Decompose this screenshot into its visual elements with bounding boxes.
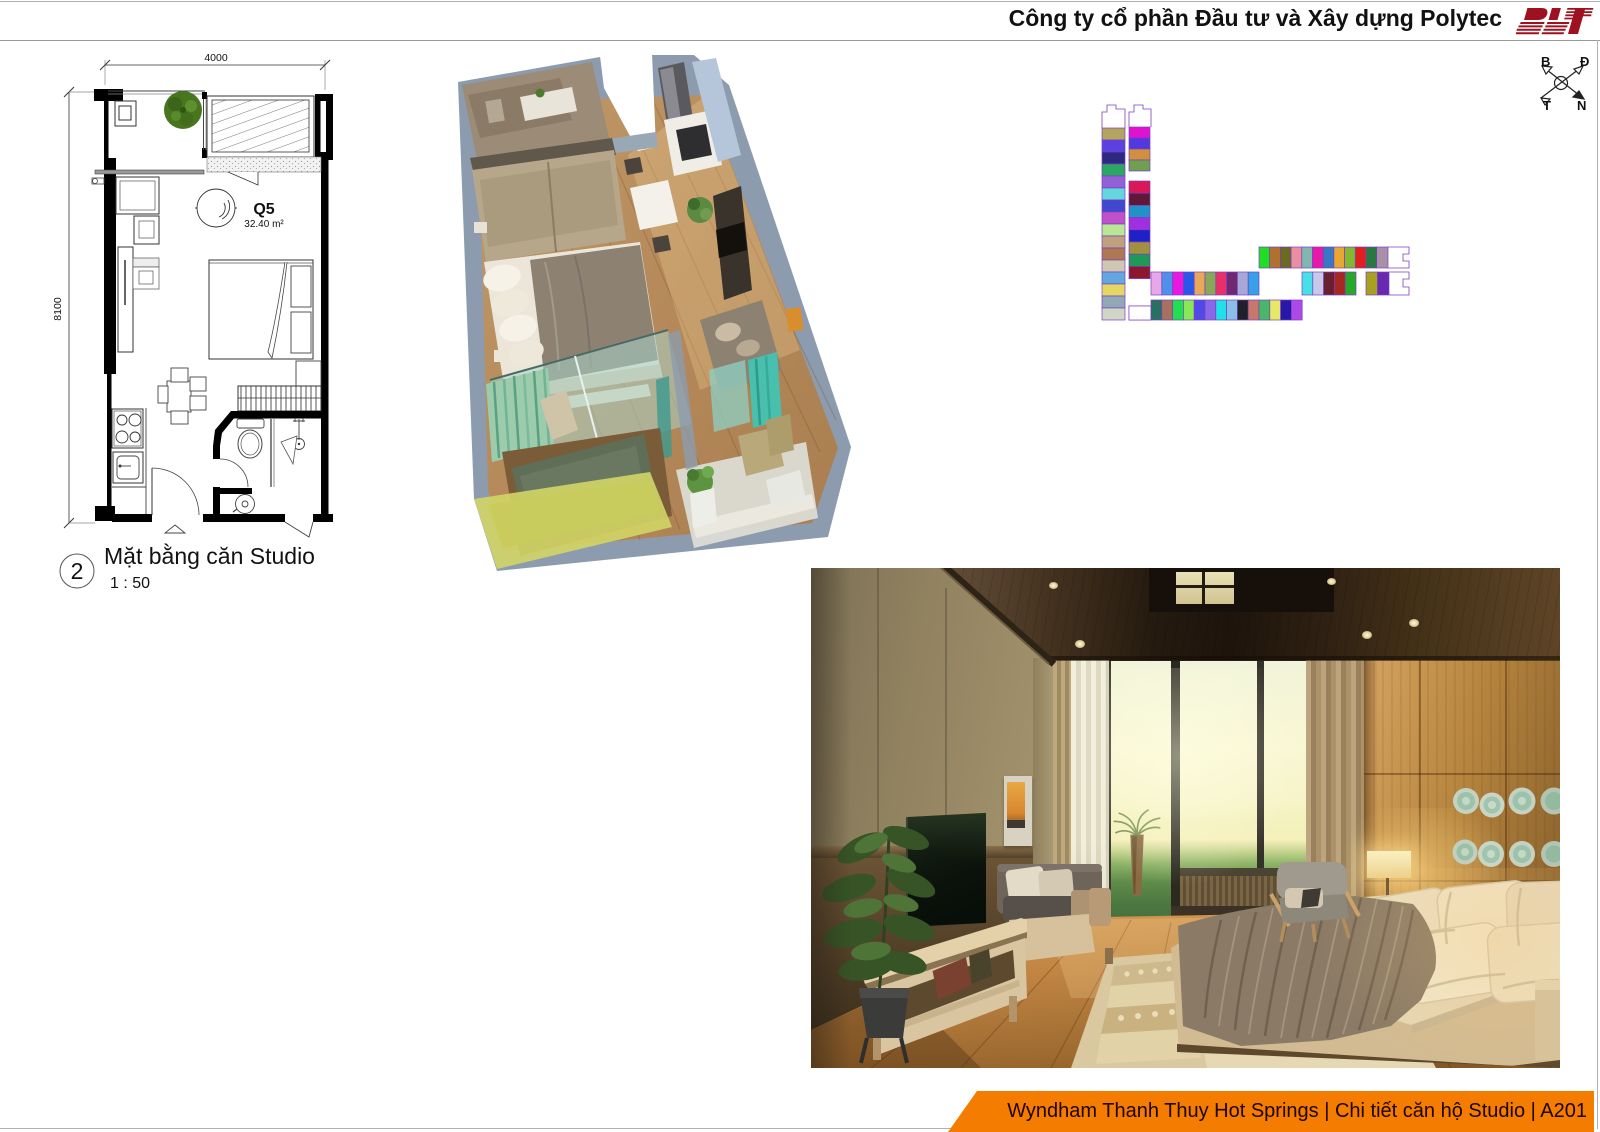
svg-text:1 : 50: 1 : 50 — [110, 575, 150, 592]
svg-text:2: 2 — [71, 558, 84, 584]
svg-text:Q5: Q5 — [253, 201, 274, 218]
svg-text:4000: 4000 — [204, 52, 228, 64]
svg-text:B: B — [1541, 54, 1550, 69]
svg-text:N: N — [1577, 98, 1586, 113]
svg-text:32.40 m²: 32.40 m² — [244, 219, 284, 230]
svg-text:Mặt bằng căn Studio: Mặt bằng căn Studio — [104, 543, 315, 569]
svg-text:8100: 8100 — [52, 297, 64, 321]
svg-text:Đ: Đ — [1580, 54, 1589, 69]
svg-text:T: T — [1543, 98, 1551, 113]
